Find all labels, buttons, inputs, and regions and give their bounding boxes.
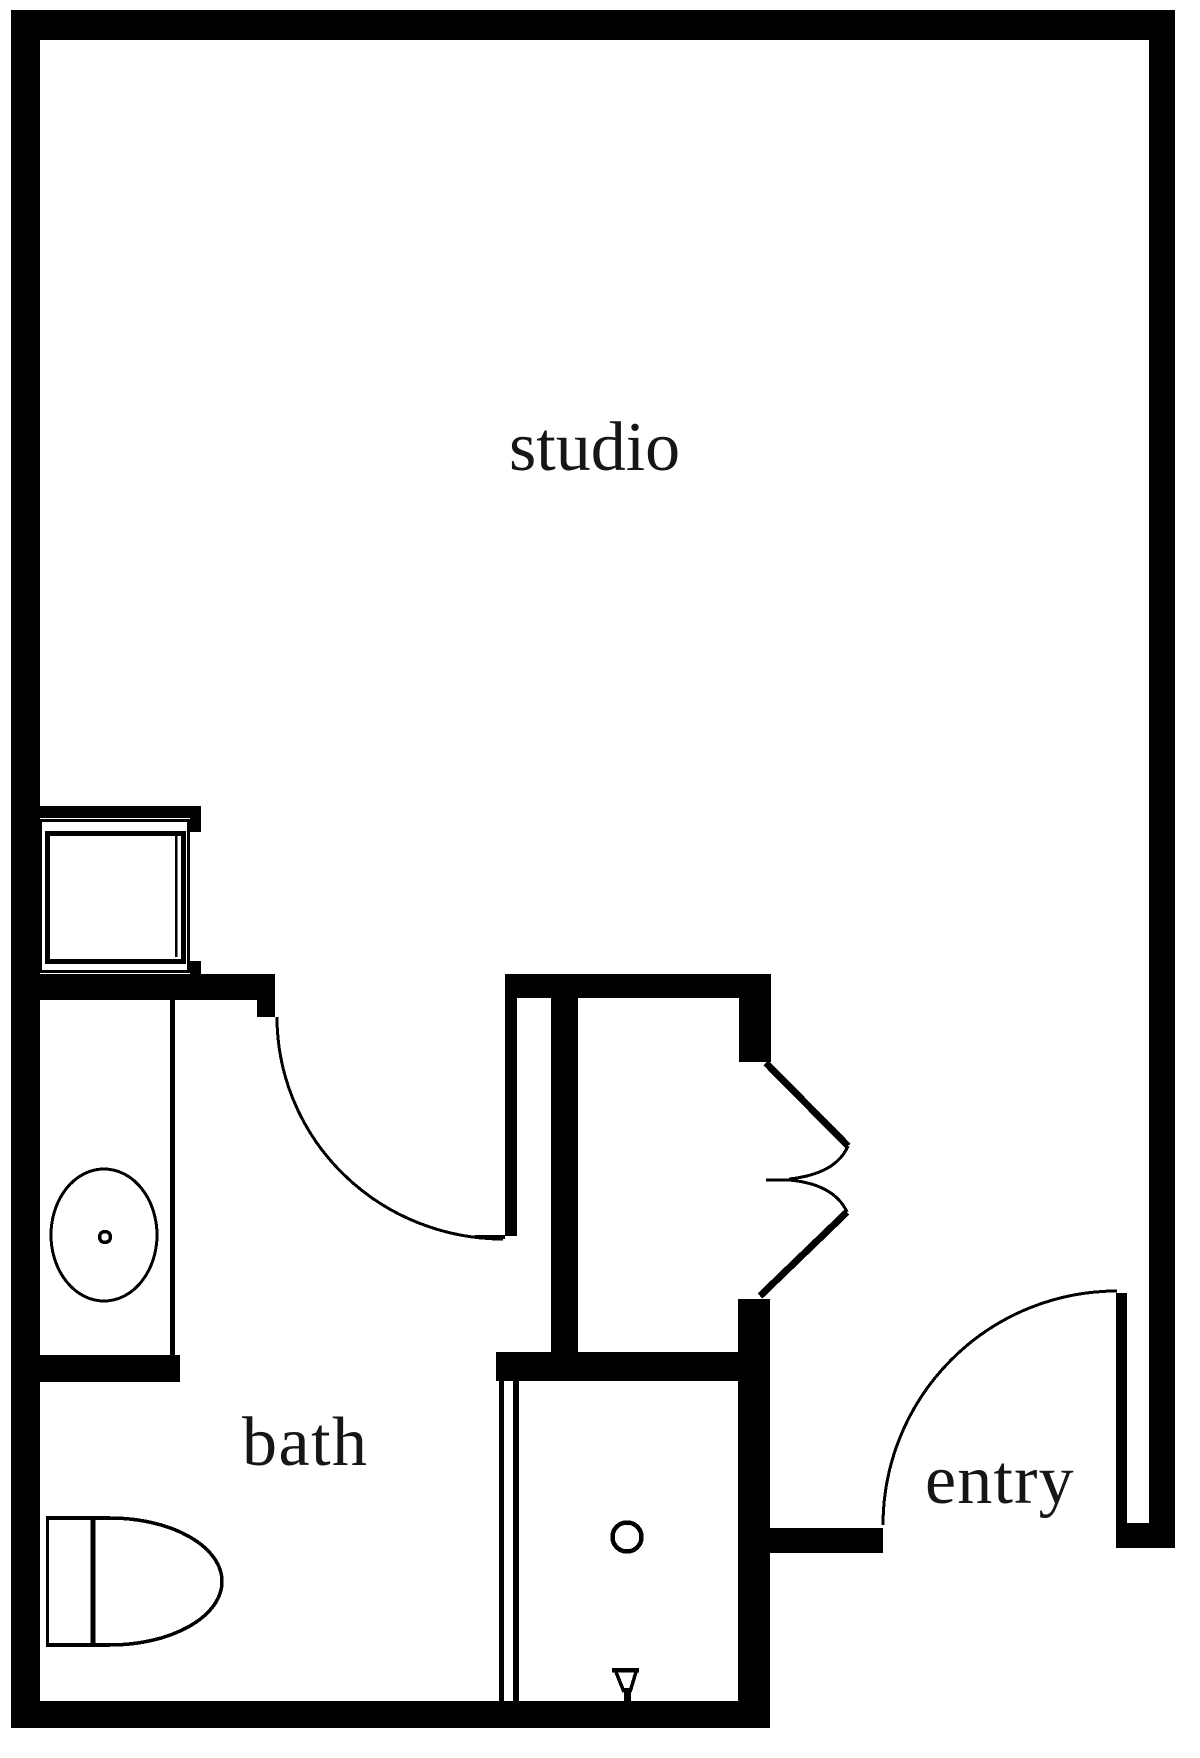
svg-text:studio: studio [509,409,680,486]
svg-text:entry: entry [925,1442,1075,1519]
svg-text:bath: bath [242,1404,369,1481]
